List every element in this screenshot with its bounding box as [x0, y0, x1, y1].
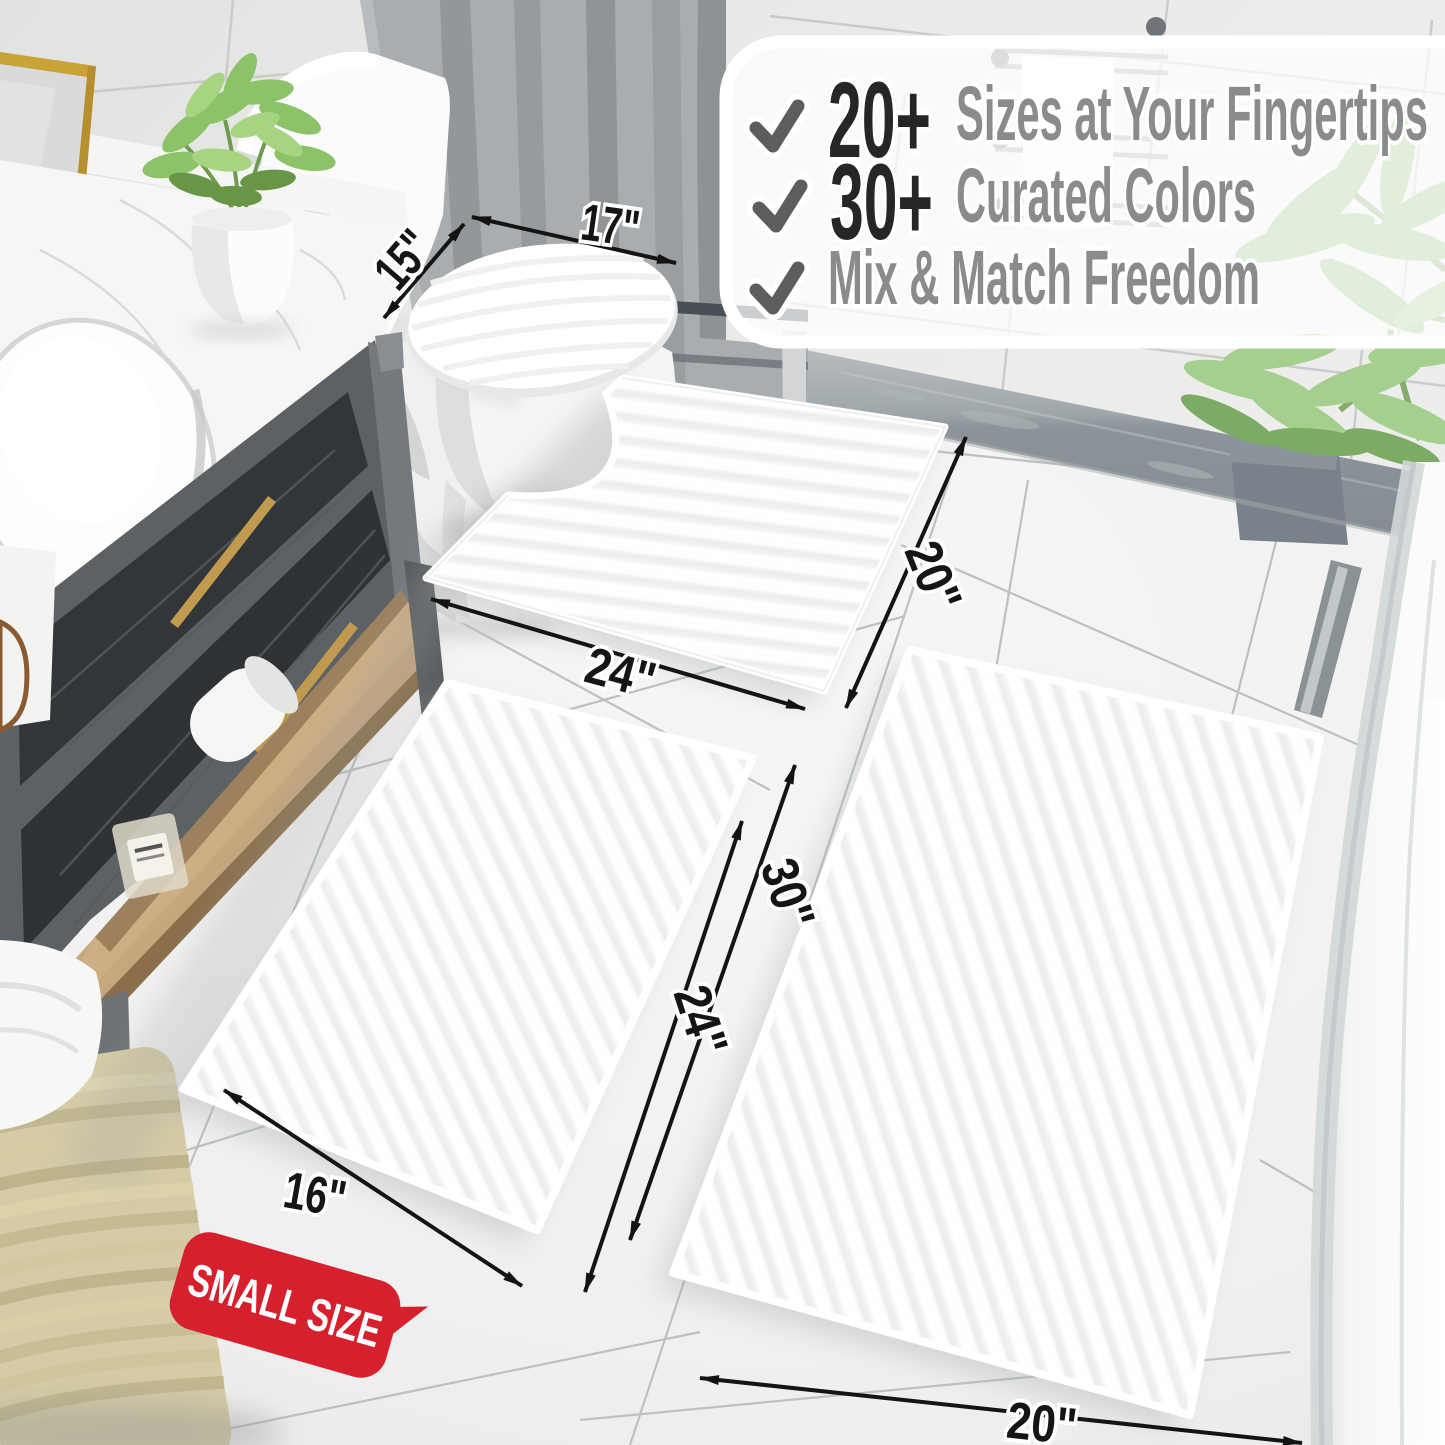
- svg-text:Curated Colors: Curated Colors: [956, 153, 1256, 239]
- svg-text:20": 20": [1004, 1392, 1080, 1445]
- svg-text:17": 17": [578, 193, 644, 259]
- svg-text:Sizes at Your Fingertips: Sizes at Your Fingertips: [956, 71, 1428, 157]
- svg-text:16": 16": [279, 1161, 350, 1229]
- svg-text:Mix & Match Freedom: Mix & Match Freedom: [828, 235, 1260, 321]
